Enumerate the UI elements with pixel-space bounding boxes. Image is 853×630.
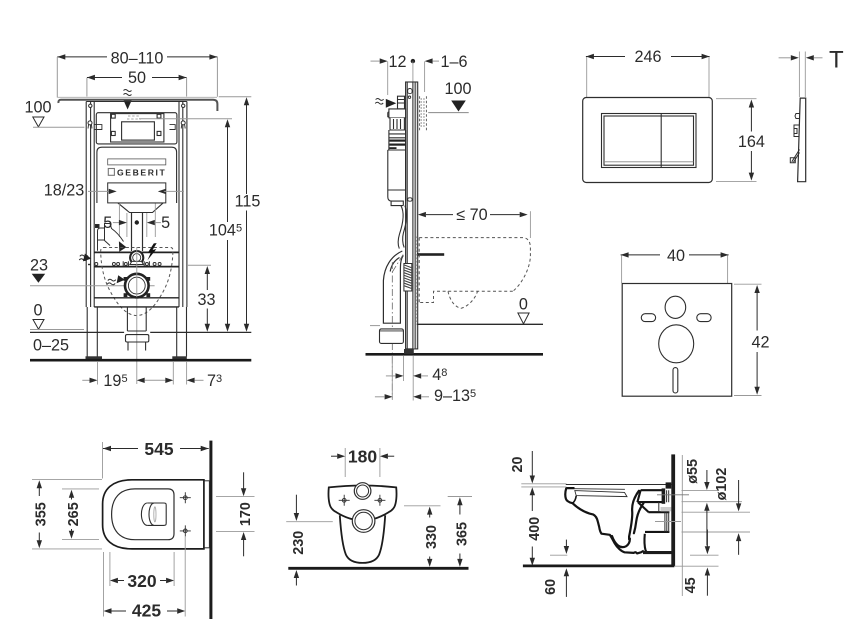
svg-text:≤ 70: ≤ 70 <box>456 206 487 224</box>
svg-text:400: 400 <box>527 517 543 541</box>
svg-text:0–25: 0–25 <box>33 337 69 355</box>
svg-text:80–110: 80–110 <box>111 50 164 68</box>
svg-text:ø55: ø55 <box>685 459 701 484</box>
svg-text:180: 180 <box>348 447 377 467</box>
svg-text:100: 100 <box>24 99 51 117</box>
svg-text:355: 355 <box>34 502 50 526</box>
svg-text:265: 265 <box>66 502 82 526</box>
svg-text:5: 5 <box>161 214 170 232</box>
svg-text:T: T <box>829 46 844 73</box>
svg-text:48: 48 <box>432 366 447 384</box>
svg-text:115: 115 <box>235 193 261 211</box>
svg-text:23: 23 <box>30 257 48 275</box>
svg-text:9–135: 9–135 <box>434 387 476 405</box>
svg-text:40: 40 <box>667 247 685 265</box>
svg-text:230: 230 <box>291 531 307 555</box>
svg-text:GEBERIT: GEBERIT <box>117 168 166 178</box>
svg-text:425: 425 <box>132 600 161 620</box>
svg-text:170: 170 <box>238 502 254 526</box>
svg-text:20: 20 <box>510 456 526 472</box>
svg-text:195: 195 <box>103 372 127 390</box>
svg-text:60: 60 <box>543 579 559 595</box>
svg-text:545: 545 <box>144 439 173 459</box>
svg-text:246: 246 <box>634 48 661 66</box>
svg-text:12: 12 <box>388 53 406 71</box>
svg-text:45: 45 <box>683 577 699 593</box>
svg-text:42: 42 <box>751 334 769 352</box>
svg-text:0: 0 <box>519 296 528 314</box>
svg-text:1–6: 1–6 <box>441 53 468 71</box>
svg-text:320: 320 <box>127 571 156 591</box>
svg-text:33: 33 <box>197 291 215 309</box>
svg-text:0: 0 <box>33 302 42 320</box>
svg-text:50: 50 <box>128 69 146 87</box>
svg-text:365: 365 <box>454 522 470 546</box>
svg-text:ø102: ø102 <box>714 468 730 501</box>
svg-text:330: 330 <box>424 525 440 549</box>
svg-text:100: 100 <box>444 80 471 98</box>
svg-text:18/23: 18/23 <box>44 181 85 199</box>
svg-text:1045: 1045 <box>209 222 242 240</box>
svg-text:164: 164 <box>738 133 765 151</box>
svg-text:73: 73 <box>207 372 222 390</box>
